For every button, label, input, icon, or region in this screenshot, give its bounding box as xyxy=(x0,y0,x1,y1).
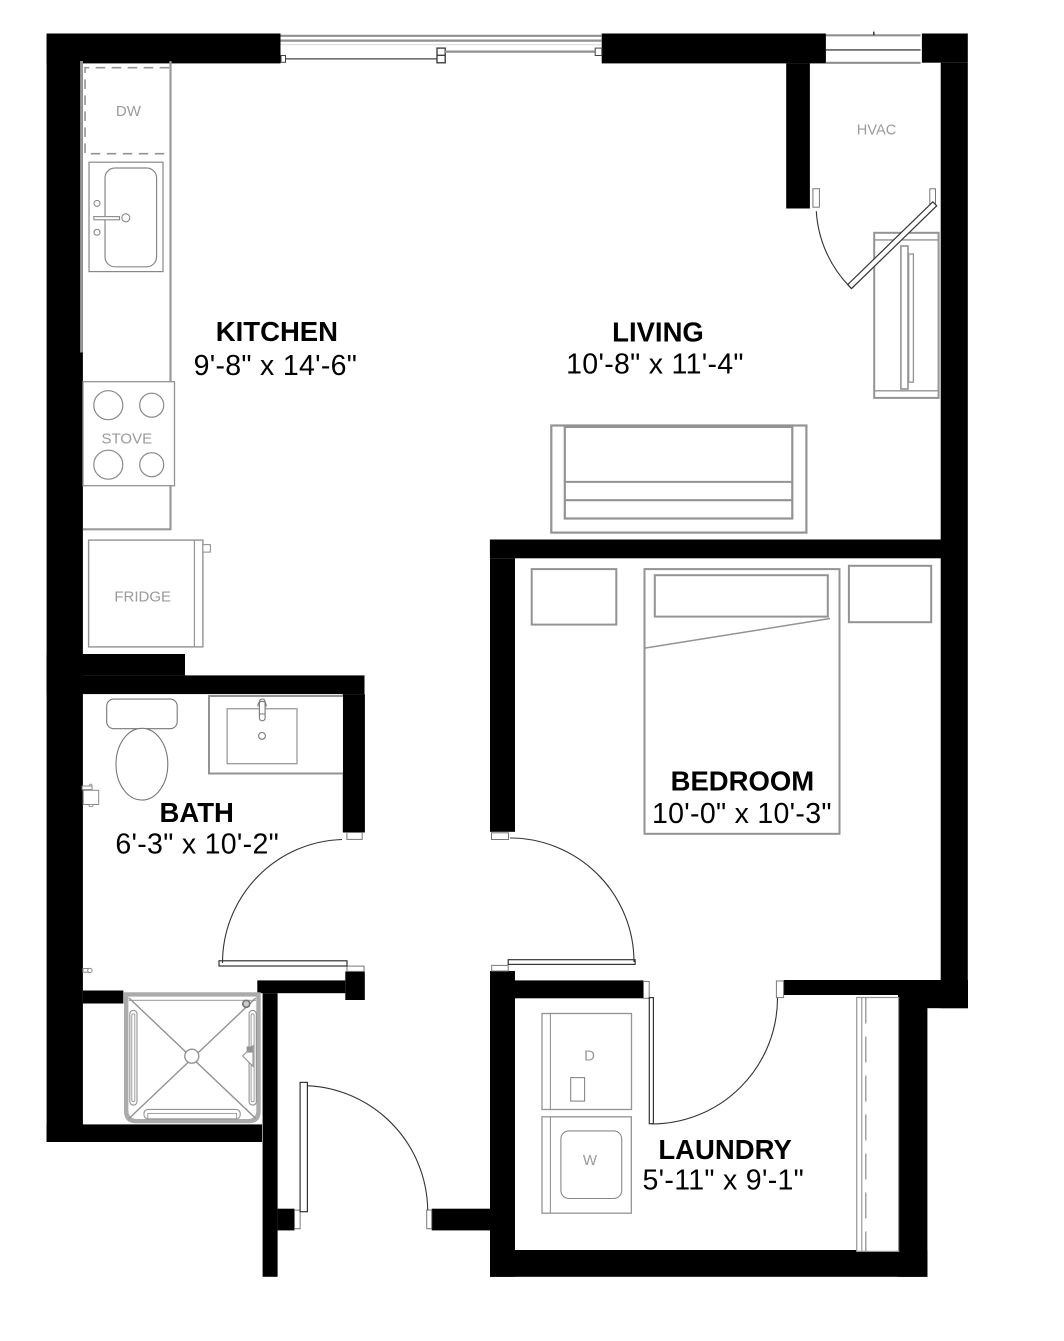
svg-text:W: W xyxy=(583,1152,598,1169)
svg-text:BEDROOM: BEDROOM xyxy=(671,766,815,797)
svg-text:DW: DW xyxy=(116,103,142,120)
svg-text:BATH: BATH xyxy=(160,797,234,828)
svg-text:10'-8" x 11'-4": 10'-8" x 11'-4" xyxy=(566,348,744,380)
svg-text:STOVE: STOVE xyxy=(102,431,153,448)
svg-text:5'-11" x 9'-1": 5'-11" x 9'-1" xyxy=(643,1164,805,1196)
svg-text:FRIDGE: FRIDGE xyxy=(114,589,171,606)
svg-text:HVAC: HVAC xyxy=(857,122,896,138)
svg-text:KITCHEN: KITCHEN xyxy=(216,316,338,347)
svg-text:6'-3" x 10'-2": 6'-3" x 10'-2" xyxy=(115,828,279,860)
svg-text:LIVING: LIVING xyxy=(612,316,704,347)
svg-text:9'-8" x 14'-6": 9'-8" x 14'-6" xyxy=(194,350,358,382)
svg-text:D: D xyxy=(584,1048,595,1065)
svg-text:10'-0" x 10'-3": 10'-0" x 10'-3" xyxy=(652,798,832,830)
svg-text:LAUNDRY: LAUNDRY xyxy=(658,1134,791,1165)
